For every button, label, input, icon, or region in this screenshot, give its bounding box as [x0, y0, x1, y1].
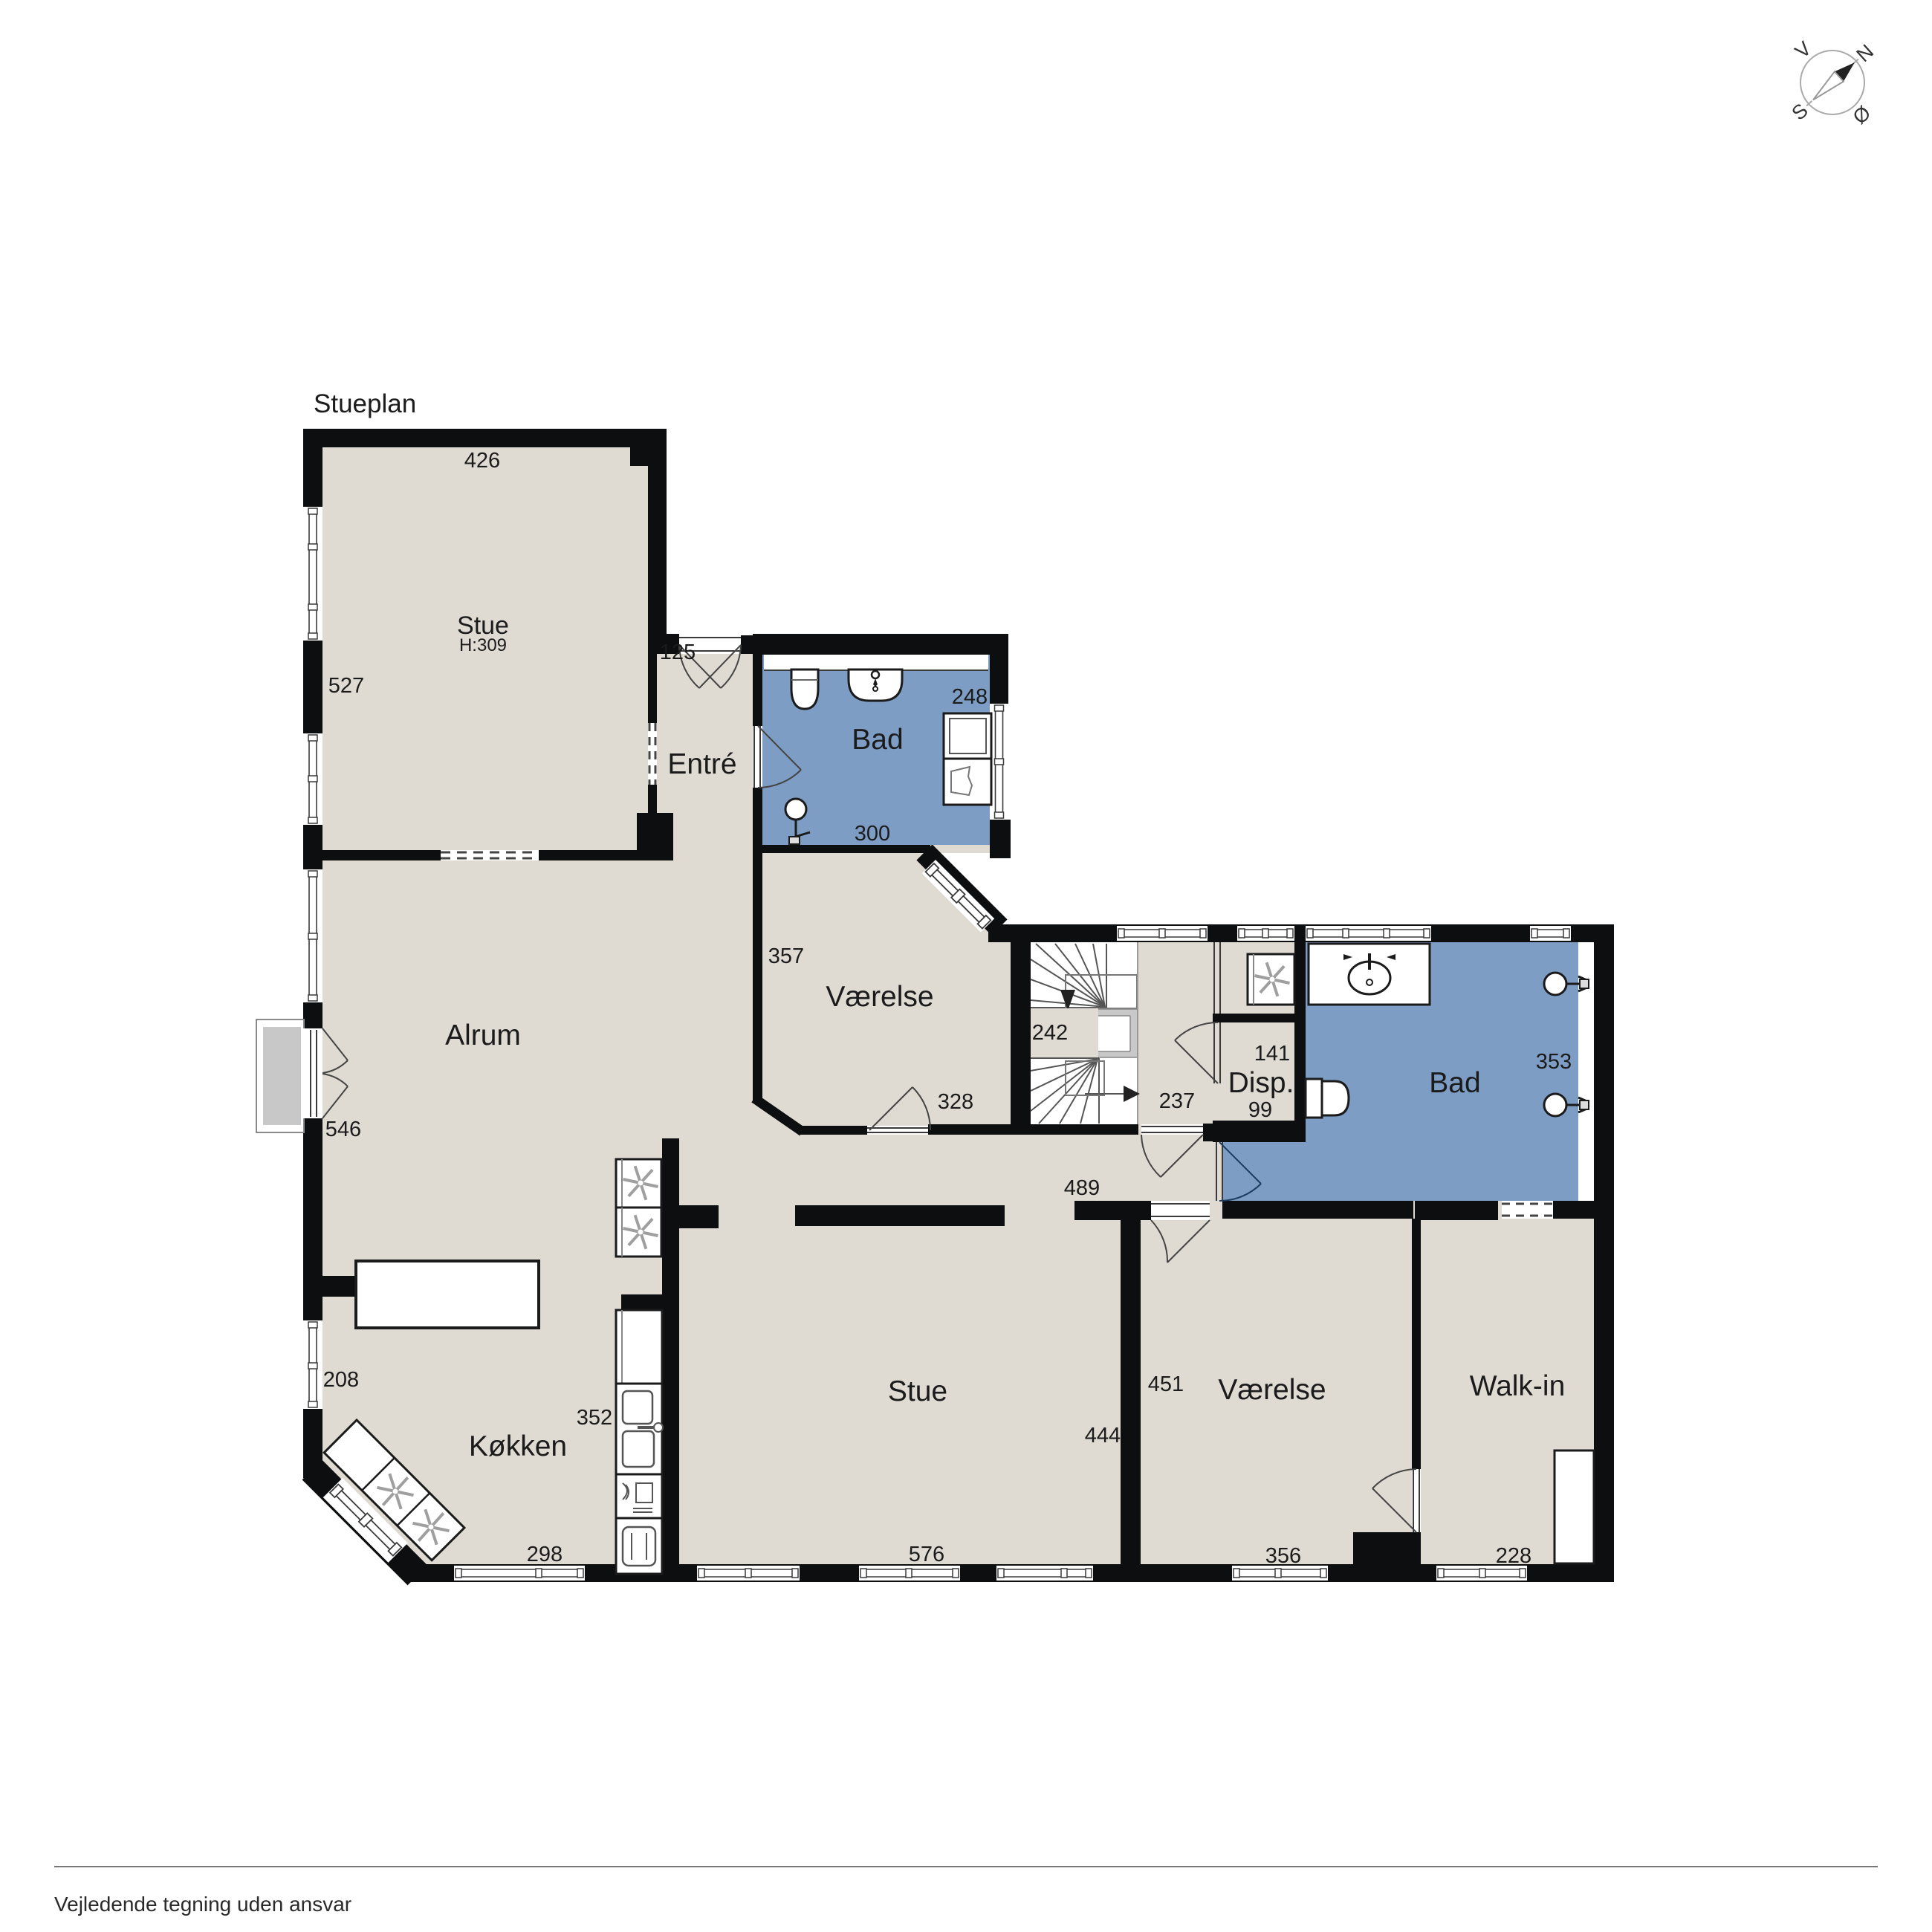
svg-text:Værelse: Værelse — [826, 981, 933, 1013]
svg-text:328: 328 — [938, 1090, 973, 1114]
svg-text:141: 141 — [1254, 1042, 1290, 1066]
svg-text:H:309: H:309 — [459, 635, 507, 655]
svg-text:Alrum: Alrum — [445, 1020, 521, 1051]
svg-text:298: 298 — [527, 1543, 563, 1566]
svg-text:353: 353 — [1536, 1050, 1572, 1074]
svg-text:352: 352 — [577, 1406, 612, 1430]
svg-text:99: 99 — [1248, 1098, 1272, 1122]
svg-text:444: 444 — [1085, 1424, 1121, 1448]
svg-text:527: 527 — [328, 674, 364, 698]
svg-text:300: 300 — [855, 822, 890, 846]
svg-text:Stueplan: Stueplan — [314, 389, 416, 418]
svg-text:125: 125 — [660, 641, 696, 664]
svg-text:Værelse: Værelse — [1218, 1374, 1326, 1406]
svg-text:237: 237 — [1159, 1089, 1195, 1113]
svg-text:Bad: Bad — [1429, 1067, 1480, 1099]
svg-text:242: 242 — [1032, 1021, 1068, 1045]
svg-text:356: 356 — [1265, 1544, 1301, 1568]
svg-text:489: 489 — [1064, 1176, 1100, 1200]
svg-text:451: 451 — [1148, 1372, 1184, 1396]
svg-text:357: 357 — [768, 944, 804, 968]
svg-text:248: 248 — [952, 685, 988, 709]
svg-text:Bad: Bad — [852, 724, 903, 756]
svg-text:Entré: Entré — [667, 748, 736, 780]
svg-text:546: 546 — [325, 1118, 361, 1141]
svg-text:426: 426 — [464, 449, 500, 473]
svg-text:Vejledende tegning uden ansvar: Vejledende tegning uden ansvar — [54, 1893, 351, 1916]
svg-text:576: 576 — [909, 1543, 944, 1566]
svg-text:228: 228 — [1496, 1544, 1531, 1568]
svg-text:Walk-in: Walk-in — [1470, 1370, 1566, 1402]
svg-text:Stue: Stue — [888, 1375, 947, 1407]
svg-text:Disp.: Disp. — [1228, 1067, 1294, 1099]
svg-text:Køkken: Køkken — [469, 1430, 567, 1462]
svg-text:208: 208 — [323, 1368, 359, 1392]
